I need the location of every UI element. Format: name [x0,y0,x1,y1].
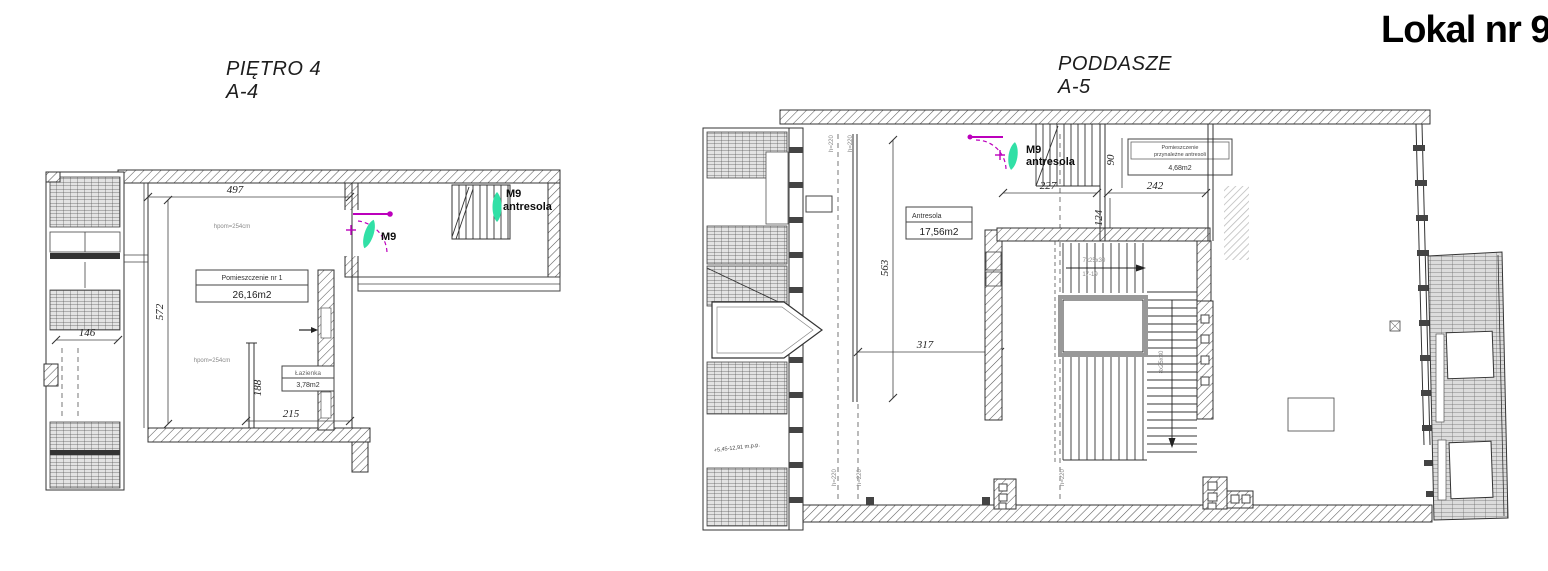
antresola-label: Antresola 17,56m2 [906,207,972,239]
roof-terrace [1428,252,1508,520]
door-pivot-dot [968,135,973,140]
stair-direction-arrow [1136,265,1146,272]
left-mezzanine-stairs [452,185,510,239]
left-m9-antresola-line2: antresola [503,201,553,213]
dim-317: 317 [916,339,934,351]
right-plan-code: A-5 [1057,76,1091,98]
floorplan-sheet: Lokal nr 9 PIĘTRO 4 A-4 [0,0,1548,571]
left-m9-label: M9 [381,231,396,243]
left-stair-tower: 146 [44,172,148,490]
door-pivot-dot [387,211,393,217]
bay-dormer [712,302,822,358]
stair-note-right: 8x25x30 [1159,350,1165,373]
room1-name: Pomieszczenie nr 1 [221,275,282,282]
room1-area: 26,16m2 [233,290,272,301]
height-line-note-1: h=220 [829,134,835,152]
pom-name-line2: przynależne antresoli [1154,152,1206,158]
stair-direction-arrow [1169,438,1176,448]
left-plan-code: A-4 [225,81,259,103]
plan-poddasze: PODDASZE A-5 +5,45-12,91 m.p.p. [703,53,1508,530]
m9-antresola-diamond-icon [1007,142,1020,171]
height-line-note-4: h=220 [857,468,863,486]
left-plan-labels: hpom=254cm hpom=254cm Pomieszczenie nr 1… [194,224,334,391]
height-line-note-5: h=220 [1060,468,1066,486]
right-stair-tower: +5,45-12,91 m.p.p. [703,128,822,530]
roof-shaft-hatch [1224,186,1249,260]
bathroom-area: 3,78m2 [296,382,319,389]
roof-window [1446,331,1494,379]
antresola-area: 17,56m2 [920,227,959,238]
right-plan-section-lines: h=220 h=220 h=220 h=220 h=220 [829,134,1066,503]
floorplan-drawing: Lokal nr 9 PIĘTRO 4 A-4 [0,0,1548,571]
right-m9-marker [968,135,1007,170]
right-mezzanine-stairs [1036,124,1100,186]
dim-124: 124 [1093,209,1105,226]
pomieszczenie-label: Pomieszczenie przynależne antresoli 4,68… [1128,139,1232,175]
stair-note-top1: 7x25x30 [1083,258,1106,264]
left-plan-title: PIĘTRO 4 [226,58,321,80]
dim-563: 563 [879,259,891,276]
ceiling-height-note-2: hpom=254cm [194,358,231,364]
pom-name-line1: Pomieszczenie [1162,145,1199,151]
ceiling-height-note-1: hpom=254cm [214,224,251,230]
right-plan-title: PODDASZE [1058,53,1172,75]
sheet-title: Lokal nr 9 [1381,9,1548,51]
stair-note-top2: 17-19 [1082,272,1098,278]
m9-diamond-icon [360,218,378,249]
roof-window [1449,441,1493,498]
right-m9-line2: antresola [1026,156,1076,168]
dim-146: 146 [79,327,96,339]
left-m9-antresola-line1: M9 [506,188,521,200]
dim-90: 90 [1105,154,1117,166]
dim-572: 572 [154,303,166,320]
dim-242: 242 [1147,180,1164,192]
dim-497: 497 [227,184,244,196]
right-plan-dimensions: 563 317 227 242 90 124 [854,136,1210,402]
height-line-note-2: h=220 [848,134,854,152]
door-arrow-icon [311,327,318,333]
dim-188: 188 [252,379,264,396]
plan-pietro4: PIĘTRO 4 A-4 [44,58,560,490]
pom-area: 4,68m2 [1168,165,1191,172]
antresola-name: Antresola [912,213,942,220]
dim-215: 215 [283,408,300,420]
height-line-note-3: h=220 [832,468,838,486]
right-m9-line1: M9 [1026,144,1041,156]
bathroom-name: Łazienka [295,370,321,377]
